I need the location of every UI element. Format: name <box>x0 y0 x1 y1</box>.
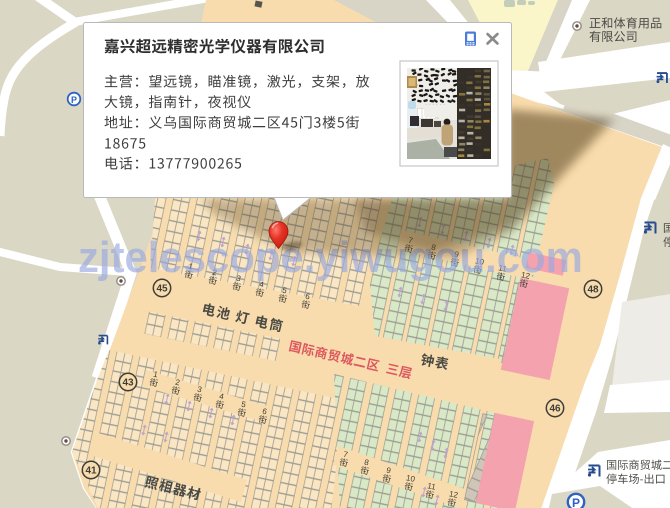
svg-text:45: 45 <box>156 284 168 295</box>
svg-text:P: P <box>71 95 77 105</box>
svg-text:48: 48 <box>587 285 599 296</box>
svg-text:46: 46 <box>549 404 561 415</box>
svg-text:P: P <box>572 496 580 508</box>
svg-text:43: 43 <box>122 378 134 389</box>
svg-text:41: 41 <box>85 466 97 477</box>
